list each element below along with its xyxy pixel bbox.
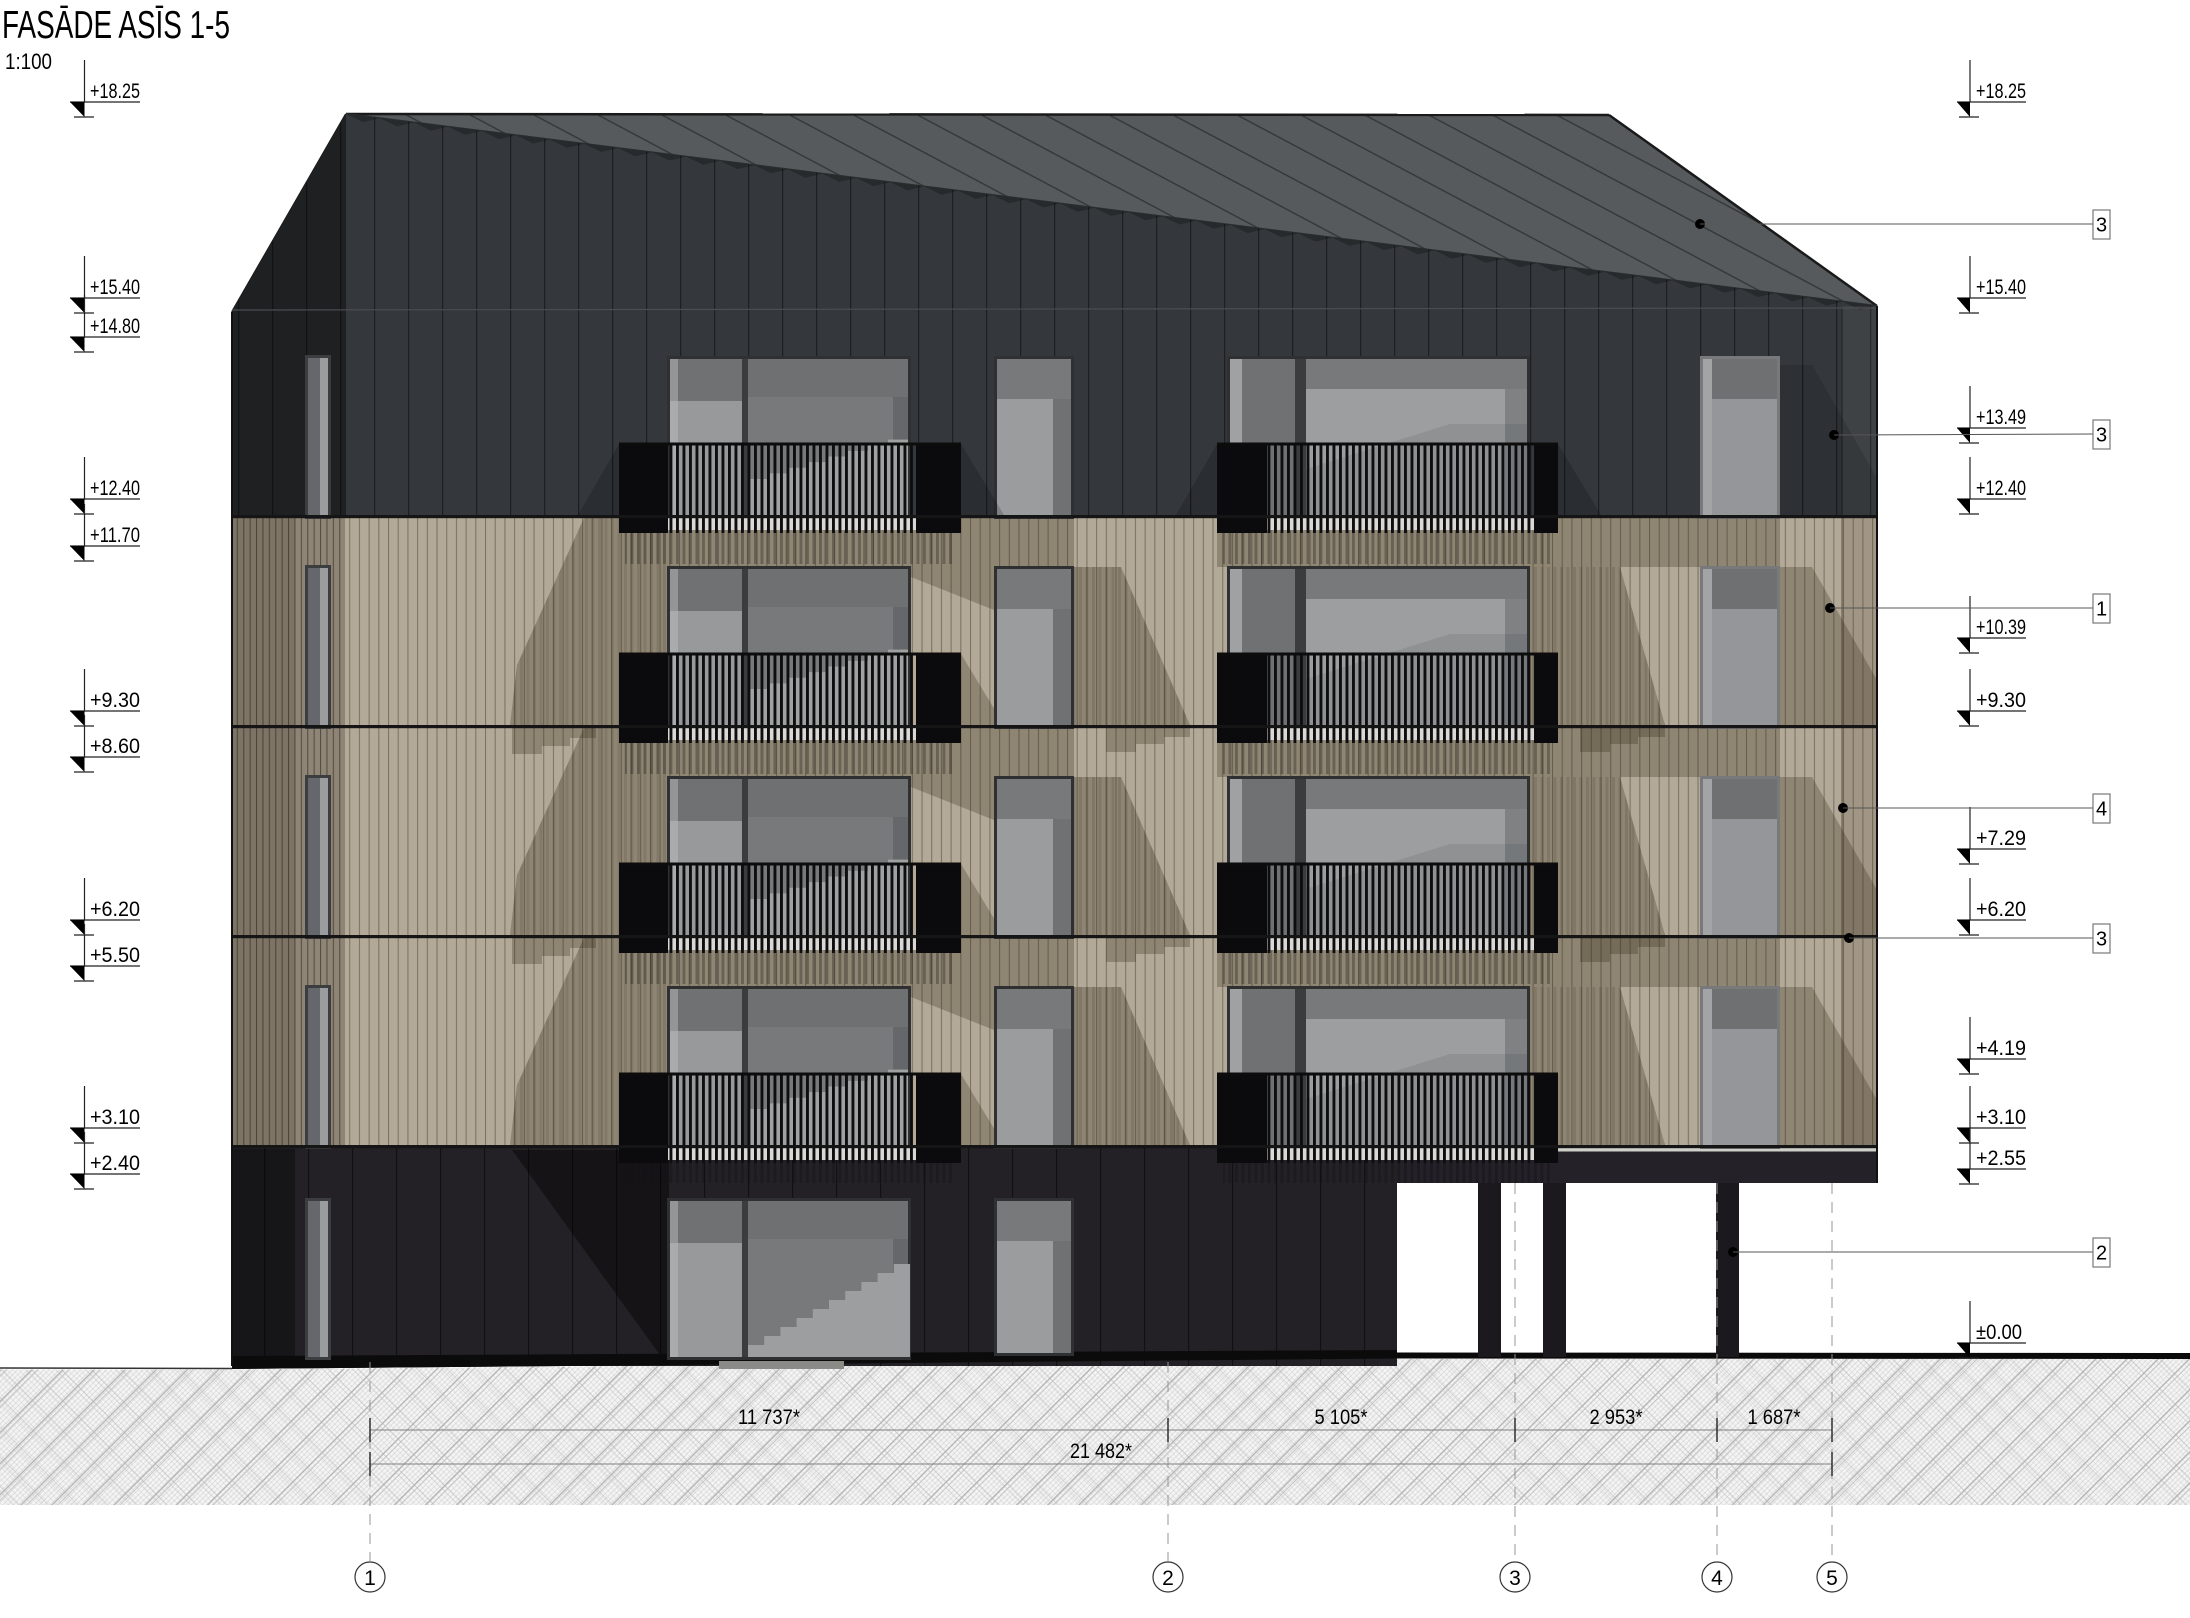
svg-text:+3.10: +3.10 (1976, 1106, 2026, 1129)
svg-text:+12.40: +12.40 (1976, 477, 2026, 500)
svg-text:FASĀDE ASĪS 1-5: FASĀDE ASĪS 1-5 (2, 4, 230, 47)
svg-text:+7.29: +7.29 (1976, 827, 2026, 850)
svg-text:2: 2 (2096, 1243, 2107, 1265)
svg-text:1 687*: 1 687* (1748, 1406, 1801, 1429)
svg-text:21 482*: 21 482* (1070, 1440, 1132, 1463)
svg-text:11 737*: 11 737* (738, 1406, 800, 1429)
svg-text:+6.20: +6.20 (90, 898, 140, 921)
svg-text:+11.70: +11.70 (90, 524, 140, 547)
svg-text:+8.60: +8.60 (90, 735, 140, 758)
svg-text:±0.00: ±0.00 (1976, 1321, 2022, 1344)
svg-text:4: 4 (2096, 799, 2107, 821)
svg-text:4: 4 (1711, 1567, 1723, 1590)
svg-text:+15.40: +15.40 (1976, 276, 2026, 299)
svg-text:2 953*: 2 953* (1590, 1406, 1643, 1429)
svg-text:2: 2 (1162, 1567, 1174, 1590)
svg-text:+9.30: +9.30 (1976, 689, 2026, 712)
svg-text:+15.40: +15.40 (90, 276, 140, 299)
svg-text:1:100: 1:100 (5, 49, 52, 74)
svg-text:+5.50: +5.50 (90, 944, 140, 967)
svg-text:+18.25: +18.25 (90, 80, 140, 103)
svg-text:1: 1 (364, 1567, 376, 1590)
svg-text:+3.10: +3.10 (90, 1106, 140, 1129)
svg-text:3: 3 (2096, 929, 2107, 951)
svg-text:+14.80: +14.80 (90, 315, 140, 338)
svg-text:5 105*: 5 105* (1315, 1406, 1368, 1429)
svg-text:+2.55: +2.55 (1976, 1147, 2026, 1170)
svg-text:+6.20: +6.20 (1976, 898, 2026, 921)
svg-text:+13.49: +13.49 (1976, 406, 2026, 429)
svg-text:3: 3 (2096, 425, 2107, 447)
svg-text:1: 1 (2096, 599, 2107, 621)
svg-text:+12.40: +12.40 (90, 477, 140, 500)
svg-text:+10.39: +10.39 (1976, 616, 2026, 639)
svg-text:3: 3 (1509, 1567, 1521, 1590)
svg-text:+9.30: +9.30 (90, 689, 140, 712)
svg-text:5: 5 (1826, 1567, 1838, 1590)
svg-text:+2.40: +2.40 (90, 1152, 140, 1175)
svg-text:+4.19: +4.19 (1976, 1037, 2026, 1060)
svg-text:3: 3 (2096, 215, 2107, 237)
svg-text:+18.25: +18.25 (1976, 80, 2026, 103)
